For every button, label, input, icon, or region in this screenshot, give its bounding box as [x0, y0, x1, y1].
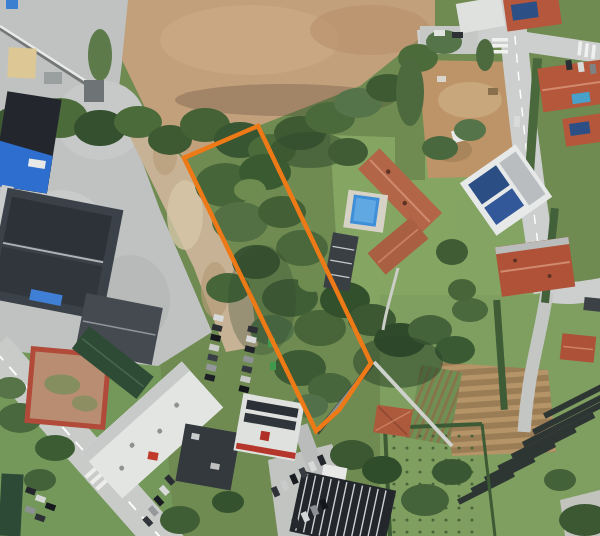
parked-car	[452, 32, 463, 38]
debris	[488, 88, 498, 95]
orchard-dotted-field	[385, 428, 481, 536]
dark-green-building	[0, 473, 24, 536]
cream-building	[7, 47, 37, 78]
dirt-mound	[438, 82, 502, 118]
blue-container	[6, 0, 18, 9]
satellite-image	[0, 0, 600, 536]
red-detail	[260, 431, 270, 441]
green-dumpster	[270, 362, 276, 370]
parked-car	[434, 30, 445, 36]
dark-structure	[84, 80, 104, 102]
dry-field-patch	[160, 5, 340, 75]
small-house-near-parcel	[373, 405, 413, 438]
dark-roof-sliver	[583, 297, 600, 312]
pool-area	[343, 190, 388, 233]
dark-canopy-building	[175, 424, 240, 491]
aerial-photo-canvas	[0, 0, 600, 536]
pool-water	[353, 198, 376, 224]
crosswalk	[492, 38, 508, 54]
car-on-road	[514, 116, 521, 127]
red-kiosk	[147, 451, 158, 461]
red-roof-house-se	[560, 333, 597, 362]
debris	[437, 76, 446, 82]
red-solar-house-e	[562, 113, 600, 146]
solar-office-building	[233, 393, 304, 461]
red-condo	[495, 237, 575, 297]
shed	[44, 72, 62, 84]
